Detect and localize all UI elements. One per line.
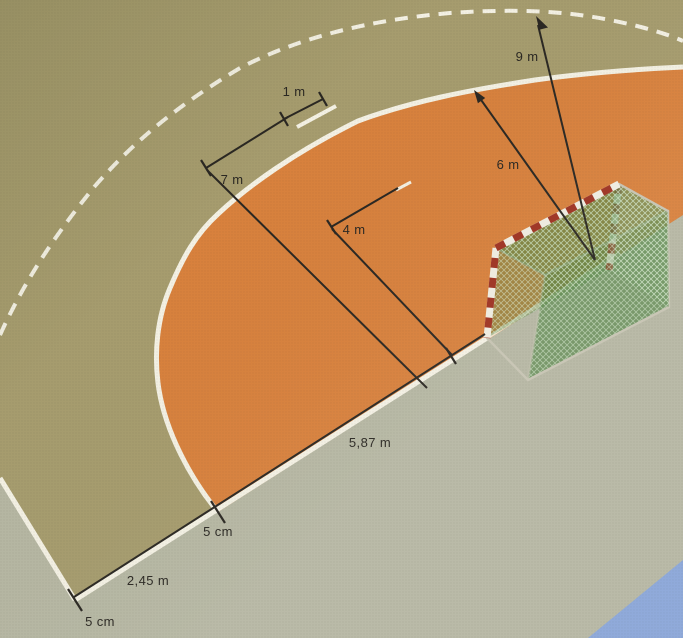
diagram-canvas: 1 m 7 m 4 m 9 m 6 m 5,87 m 5 cm 2,45 m 5…	[0, 0, 683, 638]
handball-goal-area-diagram: 1 m 7 m 4 m 9 m 6 m 5,87 m 5 cm 2,45 m 5…	[0, 0, 683, 638]
lighting-vignette	[0, 0, 683, 638]
